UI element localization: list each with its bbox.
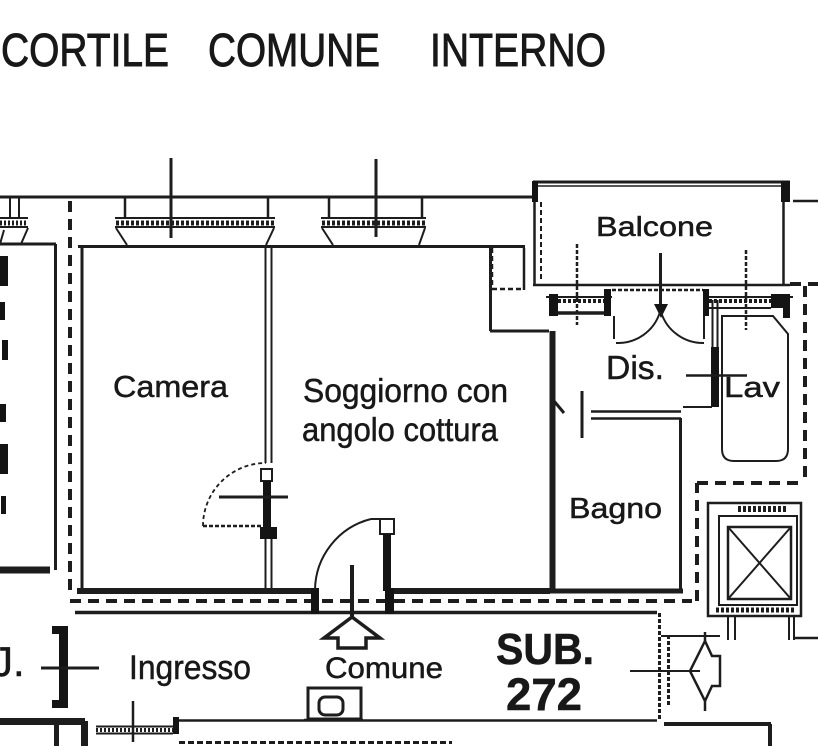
svg-text:SUB.: SUB. [496,625,594,674]
svg-text:Ingresso: Ingresso [129,649,251,687]
svg-text:Camera: Camera [113,369,229,404]
svg-text:Lav: Lav [724,372,781,404]
svg-text:Soggiorno con: Soggiorno con [303,372,508,409]
svg-text:Bagno: Bagno [569,493,662,525]
svg-text:angolo cottura: angolo cottura [302,411,499,448]
svg-text:Dis.: Dis. [606,349,664,386]
svg-text:Balcone: Balcone [596,211,713,242]
svg-text:J.: J. [0,638,25,685]
svg-text:272: 272 [506,669,582,720]
svg-text:CORTILE: CORTILE [1,24,169,76]
svg-text:COMUNE: COMUNE [208,24,380,76]
svg-text:INTERNO: INTERNO [430,24,606,76]
svg-text:Comune: Comune [325,652,443,685]
